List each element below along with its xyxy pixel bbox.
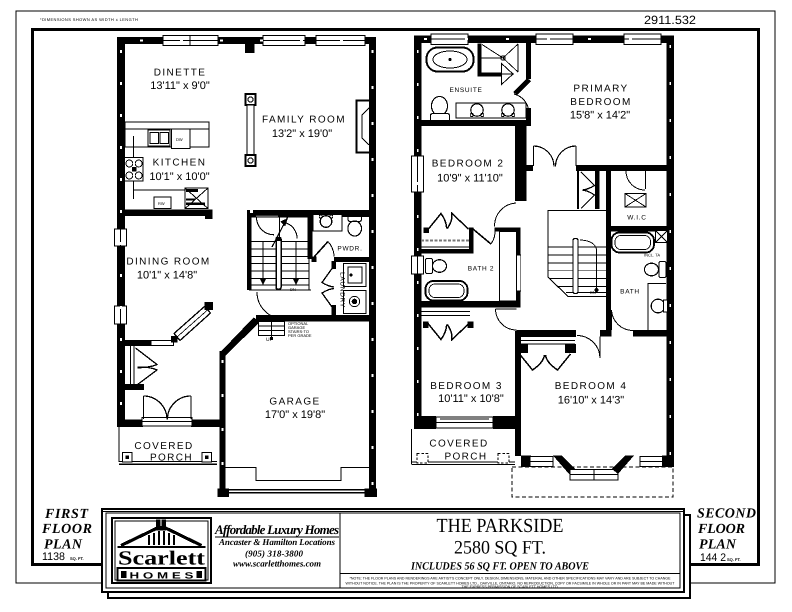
svg-text:RW: RW [158,201,165,206]
svg-text:17'0" x 19'8": 17'0" x 19'8" [265,409,325,421]
svg-text:DW: DW [176,137,183,142]
svg-text:LAUNDRY: LAUNDRY [339,272,346,308]
svg-text:Scarlett: Scarlett [118,548,205,570]
svg-text:PER GRADE: PER GRADE [288,333,312,338]
svg-text:DN: DN [590,290,596,295]
svg-text:2580 SQ FT.: 2580 SQ FT. [454,538,546,559]
svg-text:PRIMARY: PRIMARY [573,84,628,95]
svg-text:COVERED: COVERED [429,439,488,450]
svg-text:SQ. FT.: SQ. FT. [727,557,741,562]
svg-text:BEDROOM 4: BEDROOM 4 [555,381,628,392]
svg-text:144 2: 144 2 [700,552,726,564]
svg-text:*DIMENSIONS SHOWN AS WIDTH x L: *DIMENSIONS SHOWN AS WIDTH x LENGTH [40,17,138,22]
svg-text:GARAGE: GARAGE [269,397,320,408]
svg-text:(905) 318-3800: (905) 318-3800 [245,549,304,559]
svg-text:PWDR.: PWDR. [337,246,362,253]
svg-text:16'10" x 14'3": 16'10" x 14'3" [558,395,625,407]
svg-text:FAMILY ROOM: FAMILY ROOM [262,115,346,126]
svg-text:INCL. TA: INCL. TA [644,253,660,258]
svg-text:W.I.C: W.I.C [627,215,646,222]
svg-text:13'11" x 9'0": 13'11" x 9'0" [150,80,210,92]
svg-text:ENSUITE: ENSUITE [449,87,482,94]
svg-text:COVERED: COVERED [134,441,193,452]
svg-text:*NOTE: THE FLOOR PLANS AND RE: *NOTE: THE FLOOR PLANS AND RENDERINGS AR… [349,577,671,581]
svg-text:SECOND: SECOND [697,507,756,522]
svg-text:DINING ROOM: DINING ROOM [126,257,210,268]
svg-text:www.scarletthomes.com: www.scarletthomes.com [233,559,321,569]
svg-text:Affordable Luxury Homes: Affordable Luxury Homes [214,522,339,537]
svg-text:10'1" x 14'8": 10'1" x 14'8" [137,270,197,282]
svg-text:PORCH: PORCH [150,453,193,464]
svg-text:INCLUDES 56 SQ FT. OPEN TO AB: INCLUDES 56 SQ FT. OPEN TO ABOVE [410,561,589,573]
svg-text:1138: 1138 [42,551,65,563]
svg-text:10'11" x 10'8": 10'11" x 10'8" [438,393,504,405]
svg-text:PLAN: PLAN [699,538,737,553]
svg-text:2911.532: 2911.532 [644,13,696,27]
svg-text:THE PARKSIDE: THE PARKSIDE [437,515,564,537]
svg-text:FIRST: FIRST [44,507,89,522]
svg-text:BEDROOM 3: BEDROOM 3 [430,381,503,392]
svg-text:PORCH: PORCH [444,452,487,463]
svg-text:H O M E S: H O M E S [130,571,194,581]
svg-text:BATH: BATH [620,289,640,296]
svg-text:KITCHEN: KITCHEN [153,158,207,169]
svg-text:FLOOR: FLOOR [41,522,92,537]
svg-text:10'9" x 11'10": 10'9" x 11'10" [437,173,503,185]
svg-text:DINETTE: DINETTE [154,68,207,79]
svg-text:BEDROOM: BEDROOM [570,97,631,108]
svg-text:SQ. FT.: SQ. FT. [70,556,84,561]
svg-text:13'2" x 19'0": 13'2" x 19'0" [272,128,332,140]
svg-text:UP: UP [266,337,274,343]
svg-text:15'8" x 14'2": 15'8" x 14'2" [570,110,630,122]
svg-text:Ancaster & Hamilton Locations: Ancaster & Hamilton Locations [218,537,335,547]
svg-text:FLOOR: FLOOR [697,522,745,537]
svg-text:BEDROOM 2: BEDROOM 2 [432,159,505,170]
svg-text:THE EXPRESS PERMISSION OF SCAR: THE EXPRESS PERMISSION OF SCARLETT HOMES… [461,585,558,589]
svg-text:10'1" x 10'0": 10'1" x 10'0" [149,171,209,183]
svg-text:BATH 2: BATH 2 [468,266,494,273]
